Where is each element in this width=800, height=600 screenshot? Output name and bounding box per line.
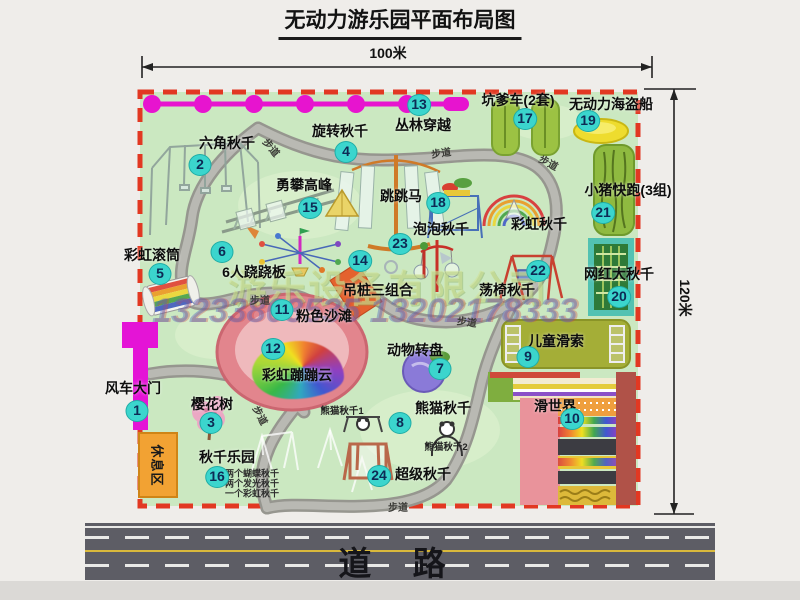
attraction-label: 勇攀高峰 xyxy=(276,175,332,195)
attraction-badge: 4 xyxy=(335,141,358,163)
attraction-badge: 10 xyxy=(560,408,584,430)
rest-area-label: 休息区 xyxy=(149,444,168,486)
attraction-badge: 18 xyxy=(426,192,450,214)
attraction-badge: 3 xyxy=(200,412,223,434)
attraction-label: 跳跳马 xyxy=(380,186,422,206)
attraction-sub-label: 熊猫秋千1 xyxy=(320,403,363,417)
height-dimension-label: 120米 xyxy=(675,279,695,316)
attraction-label: 超级秋千 xyxy=(395,464,451,484)
attraction-badge: 20 xyxy=(607,286,631,308)
page-title: 无动力游乐园平面布局图 xyxy=(279,4,522,40)
attraction-label: 动物转盘 xyxy=(387,340,443,360)
attraction-badge: 11 xyxy=(271,299,294,321)
attraction-label: 熊猫秋千 xyxy=(415,398,471,418)
attraction-label: 秋千乐园 xyxy=(199,447,255,467)
attraction-label: 彩虹蹦蹦云 xyxy=(262,365,332,385)
attraction-label: 儿童滑索 xyxy=(528,331,584,351)
attraction-badge: 22 xyxy=(526,260,550,282)
attraction-label: 吊桩三组合 xyxy=(343,280,413,300)
attraction-badge: 19 xyxy=(576,110,600,132)
attraction-label: 旋转秋千 xyxy=(312,121,368,141)
attraction-badge: 1 xyxy=(126,400,149,422)
attraction-badge: 12 xyxy=(261,338,285,360)
attraction-badge: 6 xyxy=(211,241,234,263)
attraction-label: 彩虹秋千 xyxy=(511,214,567,234)
attraction-label: 粉色沙滩 xyxy=(296,306,352,326)
attraction-label: 樱花树 xyxy=(191,394,233,414)
walkway-label: 步道 xyxy=(388,499,408,514)
attraction-label: 网红大秋千 xyxy=(584,264,654,284)
attraction-badge: 9 xyxy=(517,346,540,368)
attraction-badge: 5 xyxy=(149,263,172,285)
playground-plan-page: 休息区 游乐设备有限公司 13233803535 13202178333 无动力… xyxy=(0,0,800,600)
walkway-label: 步道 xyxy=(456,312,478,330)
walkway-label: 步道 xyxy=(250,292,270,307)
attraction-badge: 14 xyxy=(348,250,372,272)
attraction-label: 泡泡秋千 xyxy=(413,219,469,239)
attraction-label: 六角秋千 xyxy=(199,133,255,153)
attraction-badge: 17 xyxy=(513,108,537,130)
width-dimension-label: 100米 xyxy=(369,43,406,63)
attraction-label: 坑爹车(2套) xyxy=(481,90,554,110)
rest-area: 休息区 xyxy=(138,432,178,498)
attraction-label: 风车大门 xyxy=(105,378,161,398)
attraction-badge: 2 xyxy=(189,154,212,176)
attraction-sub-label: 熊猫秋千2 xyxy=(424,439,467,453)
attraction-badge: 8 xyxy=(389,412,412,434)
walkway-label: 步道 xyxy=(430,143,452,161)
attraction-label: 6人跷跷板 xyxy=(222,262,286,282)
attraction-badge: 21 xyxy=(591,202,615,224)
attraction-label: 小猪快跑(3组) xyxy=(584,180,671,200)
attraction-badge: 23 xyxy=(388,233,412,255)
attraction-label: 丛林穿越 xyxy=(395,115,451,135)
attraction-label: 荡椅秋千 xyxy=(479,280,535,300)
attraction-badge: 16 xyxy=(205,466,229,488)
attraction-label: 彩虹滚筒 xyxy=(124,245,180,265)
attraction-badge: 15 xyxy=(298,197,322,219)
attraction-badge: 13 xyxy=(407,94,431,116)
attraction-badge: 7 xyxy=(429,358,452,380)
attraction-badge: 24 xyxy=(367,465,391,487)
swing-park-note: 一个彩虹秋千 xyxy=(225,487,279,500)
